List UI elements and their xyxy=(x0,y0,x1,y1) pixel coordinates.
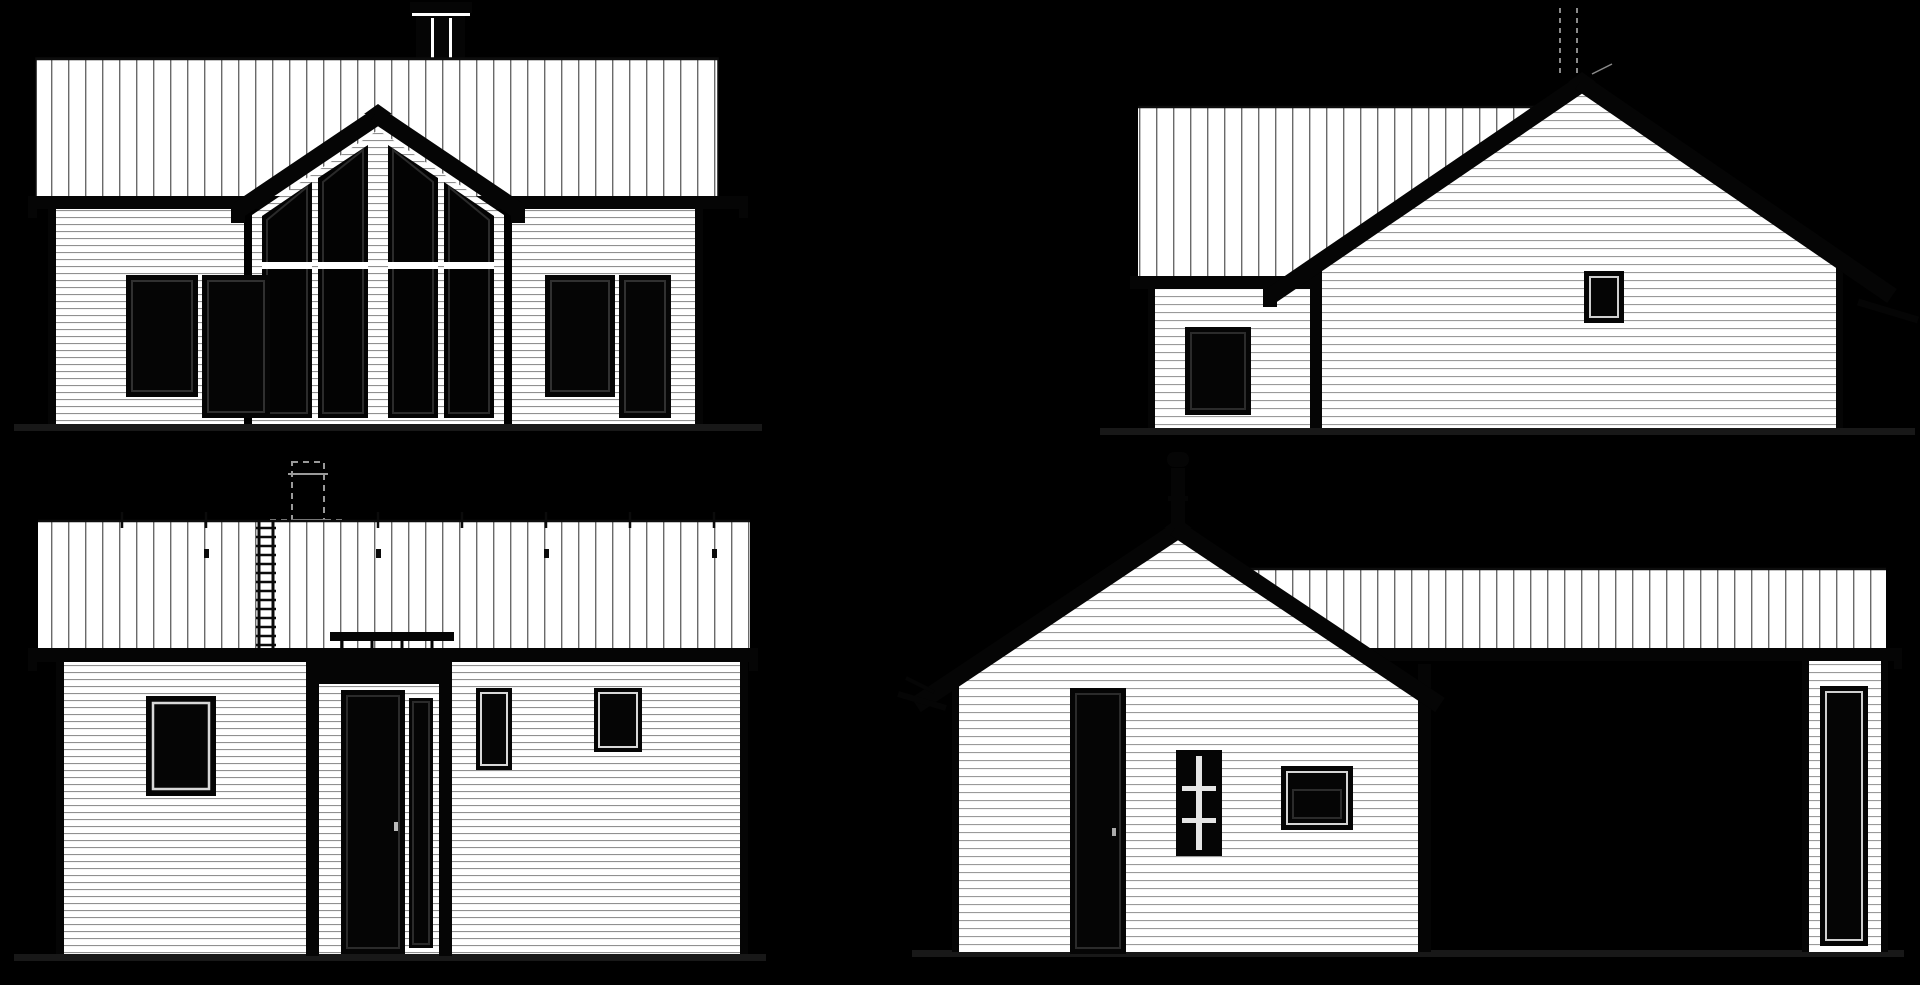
entry-post xyxy=(439,648,452,956)
transom-bar xyxy=(444,262,494,269)
left-window xyxy=(146,696,216,796)
ground-line xyxy=(1100,428,1915,435)
left-corner-trim xyxy=(56,662,64,954)
gable-window xyxy=(318,145,368,418)
front-elevation xyxy=(14,2,762,431)
elevations-drawing xyxy=(0,0,1920,985)
wing-corner-trim xyxy=(1148,289,1155,428)
side-door xyxy=(1070,688,1126,954)
entry-header xyxy=(306,648,452,684)
ground-line xyxy=(14,954,766,961)
chimney-seam xyxy=(431,18,434,60)
entry-post xyxy=(306,648,319,956)
left-corner-trim xyxy=(48,209,56,424)
corner-trim xyxy=(1881,661,1888,952)
pipe-cap xyxy=(1167,452,1189,467)
gable-window xyxy=(388,145,438,418)
chimney xyxy=(410,2,472,62)
eave-end-hook xyxy=(1894,648,1902,669)
rear-elevation xyxy=(14,462,766,961)
ground-line xyxy=(14,424,762,431)
gable-corner-trim xyxy=(1836,263,1843,428)
right-corner-trim xyxy=(695,209,703,424)
elevation-sheet xyxy=(0,0,1920,985)
chimney-seam xyxy=(449,18,452,60)
window xyxy=(202,275,270,418)
transom-bar xyxy=(388,262,438,269)
right-window-pair xyxy=(545,275,671,418)
side-door xyxy=(1185,327,1251,415)
corner-trim xyxy=(952,686,959,952)
right-window-wide xyxy=(594,688,642,752)
small-grid-window xyxy=(1176,750,1222,856)
wing-eave-band xyxy=(1352,648,1902,661)
door-handle xyxy=(1112,828,1116,836)
corner-trim xyxy=(1802,661,1809,952)
main-roof xyxy=(38,520,750,650)
chimney-cap-gap xyxy=(412,13,470,16)
door-handle xyxy=(394,822,398,831)
corner-post xyxy=(1310,262,1322,428)
chimney-body xyxy=(416,16,465,62)
window xyxy=(619,275,671,418)
transom-bar xyxy=(318,262,368,269)
wide-low-window xyxy=(1281,766,1353,830)
chimney-cap xyxy=(410,2,472,13)
window xyxy=(545,275,615,397)
pipe-collar xyxy=(1168,496,1188,501)
left-window-pair xyxy=(126,275,270,418)
transom-bar xyxy=(262,262,312,269)
entry-bay xyxy=(306,648,452,956)
right-corner-trim xyxy=(740,662,748,954)
window xyxy=(126,275,198,397)
tall-window xyxy=(1820,686,1868,946)
far-wall-strip xyxy=(1802,661,1888,952)
